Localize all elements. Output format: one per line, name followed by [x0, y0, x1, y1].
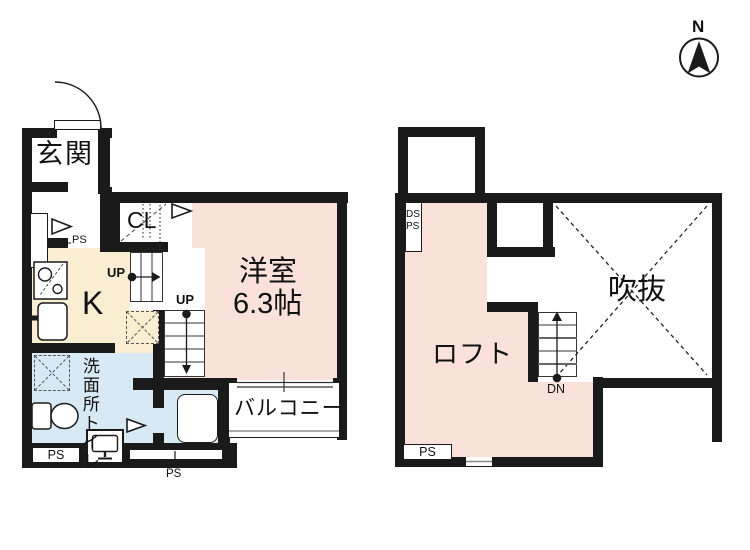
hatched-area-washroom: [34, 355, 70, 391]
stairs-up-label-2: UP: [176, 293, 194, 306]
room-label-western: 洋室: [239, 258, 297, 287]
wall-segment: [398, 127, 408, 203]
stairs-up-label-1: UP: [107, 266, 125, 279]
wall-segment: [22, 182, 68, 192]
room-label-loft: ロフト: [432, 341, 513, 367]
room-size-western: 6.3帖: [233, 290, 302, 319]
compass-north-label: N: [692, 18, 704, 35]
stairs-lower-flight: [130, 252, 163, 302]
room-label-balcony: バルコニー: [234, 398, 344, 419]
washroom-label: 洗面所: [80, 357, 99, 414]
wall-segment: [22, 343, 115, 353]
toilet-label: トイレ: [80, 414, 99, 471]
room-label-void: 吹抜: [608, 276, 666, 305]
ps-label-left: PS: [72, 235, 87, 246]
compass-icon: [680, 39, 718, 77]
wall-segment: [395, 193, 722, 203]
room-label-closet: CL: [127, 209, 156, 232]
stairs-main-flight: [164, 310, 205, 377]
wall-segment: [528, 302, 538, 382]
wall-segment: [110, 192, 348, 203]
stairs-down-label: DN: [547, 383, 565, 396]
wall-segment: [22, 128, 32, 468]
room-loft: [487, 302, 528, 457]
door-marker: [52, 219, 71, 234]
duct-label-ds: DS: [406, 210, 420, 220]
wall-segment: [593, 377, 603, 467]
wall-slot: [130, 450, 222, 459]
wall-slot: [466, 457, 492, 466]
wall-segment: [593, 378, 722, 388]
wall-segment: [133, 378, 237, 390]
ps-label-bottom-center: PS: [166, 469, 181, 481]
ps-box-2f: PS: [403, 444, 452, 460]
room-label-kitchen: K: [82, 287, 103, 319]
room-label-washroom-toilet: 洗面所トイレ: [80, 357, 98, 423]
wall-segment: [398, 127, 485, 137]
duct-label-ps: PS: [406, 222, 419, 232]
entrance-door-leaf: [54, 120, 101, 130]
ps-label: PS: [48, 449, 65, 462]
wall-segment: [395, 193, 405, 467]
wall-segment: [712, 193, 722, 442]
wall-segment: [543, 203, 553, 257]
ps-box-bottom-left: PS: [32, 447, 80, 463]
stairs-upper-floor: [538, 312, 577, 377]
room-label-entrance: 玄関: [36, 141, 94, 168]
shoe-cabinet: [30, 213, 48, 268]
floor-plan-canvas: PS PS: [0, 0, 750, 550]
wall-segment: [110, 242, 168, 252]
wall-segment: [98, 138, 110, 194]
ps-label: PS: [419, 446, 436, 459]
wall-segment: [475, 127, 485, 203]
bathtub: [177, 394, 218, 443]
hatched-area-kitchen: [126, 311, 159, 344]
